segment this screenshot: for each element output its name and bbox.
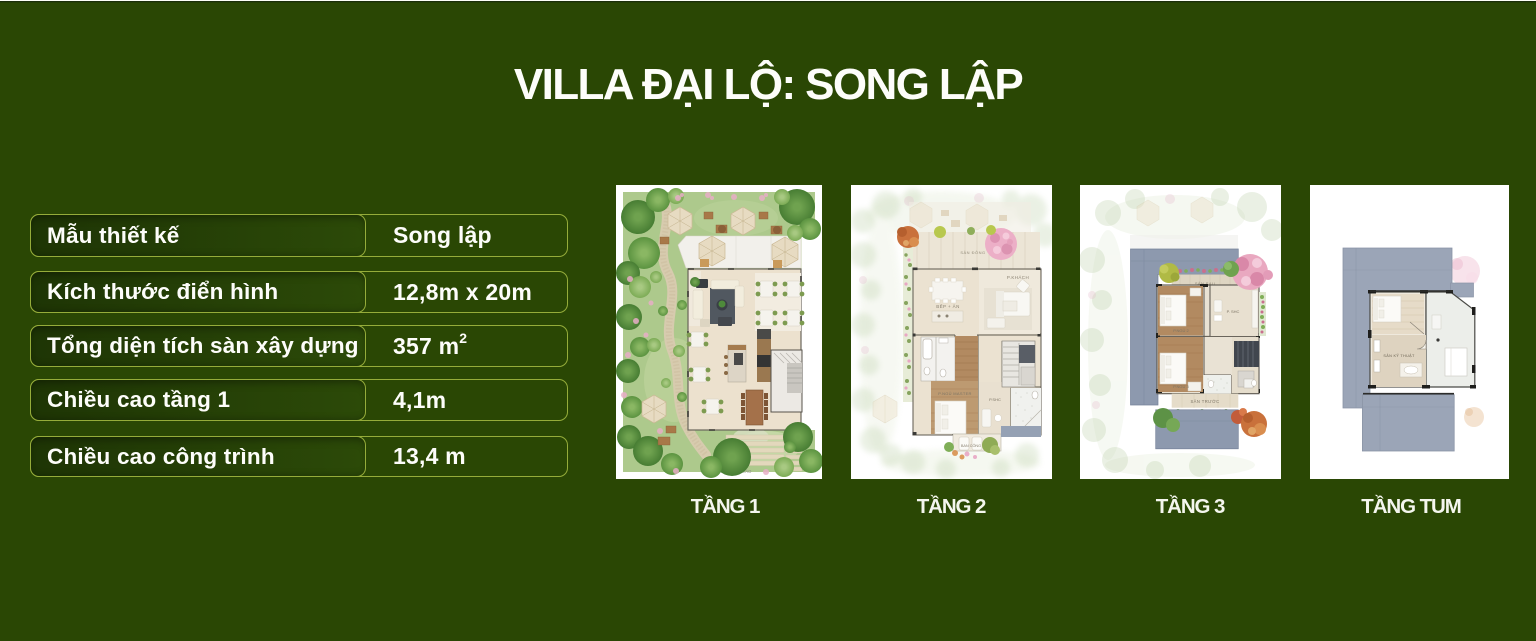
svg-text:SÂN ĐÔNG: SÂN ĐÔNG [960, 250, 985, 255]
svg-text:SÂN KỸ THUẬT: SÂN KỸ THUẬT [1383, 353, 1415, 358]
svg-text:BAN CÔNG: BAN CÔNG [961, 443, 981, 448]
svg-text:P.NGỦ 3: P.NGỦ 3 [1173, 384, 1189, 389]
svg-text:BẾP + ĂN: BẾP + ĂN [936, 303, 960, 309]
svg-text:SÂN TRƯỚC: SÂN TRƯỚC [1190, 399, 1219, 404]
svg-text:P.NGỦ MASTER: P.NGỦ MASTER [938, 391, 972, 396]
svg-text:P.SHC: P.SHC [989, 397, 1001, 402]
svg-text:P.KHÁCH: P.KHÁCH [1007, 274, 1029, 280]
svg-text:P.NGỦ 2: P.NGỦ 2 [1173, 328, 1189, 333]
svg-text:P. SHC: P. SHC [1227, 309, 1240, 314]
